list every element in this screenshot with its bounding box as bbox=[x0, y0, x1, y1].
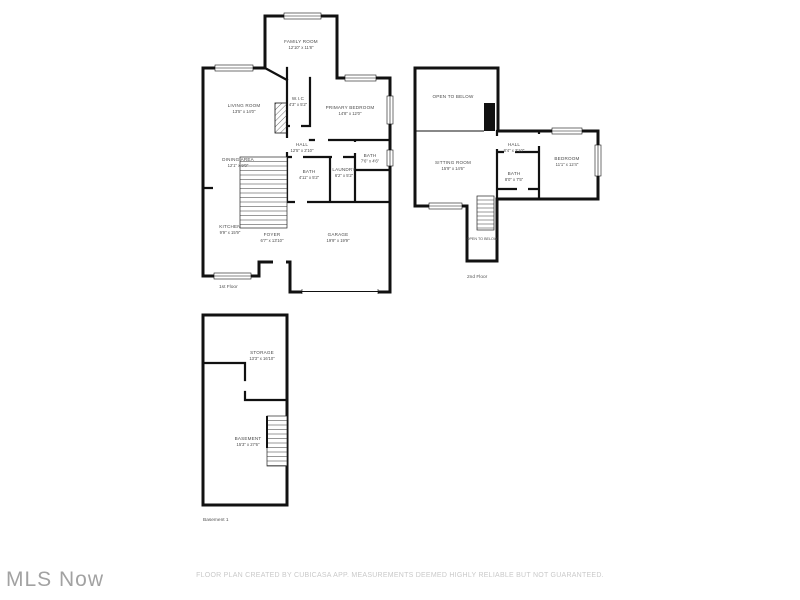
room-dims-garage: 19'9" x 19'9" bbox=[327, 238, 350, 243]
room-label-sitting-room: SITTING ROOM bbox=[435, 160, 471, 165]
room-label-open-to-below: OPEN TO BELOW bbox=[433, 94, 474, 99]
stair-outline bbox=[267, 416, 287, 466]
room-dims-family-room: 12'10" x 11'8" bbox=[289, 45, 314, 50]
basement-interior-walls bbox=[203, 363, 287, 400]
floor-label-second: 2nd Floor bbox=[467, 274, 488, 280]
garage-door bbox=[302, 289, 378, 295]
room-label-bath-1: BATH bbox=[303, 169, 316, 174]
floor-label-first: 1st Floor bbox=[219, 284, 238, 290]
first-floor-exterior-walls bbox=[203, 16, 390, 292]
room-label-family-room: FAMILY ROOM bbox=[284, 39, 318, 44]
chimney-block bbox=[484, 103, 495, 131]
second-floor-stairs bbox=[477, 196, 494, 230]
room-dims-hall-2: 8'4" x 2'10" bbox=[504, 148, 525, 153]
room-label-bedroom: BEDROOM bbox=[554, 156, 579, 161]
second-floor-plan: OPEN TO BELOW SITTING ROOM 15'9" x 14'6"… bbox=[415, 68, 601, 280]
room-label-laundry: LAUNDRY bbox=[332, 167, 355, 172]
basement-exterior-walls bbox=[203, 315, 287, 505]
disclaimer-text: FLOOR PLAN CREATED BY CUBICASA APP. MEAS… bbox=[0, 572, 800, 579]
room-label-hall-2: HALL bbox=[508, 142, 521, 147]
room-label-foyer: FOYER bbox=[264, 232, 281, 237]
room-label-primary-bedroom: PRIMARY BEDROOM bbox=[326, 105, 375, 110]
room-dims-basement: 15'3" x 27'6" bbox=[237, 442, 260, 447]
first-floor-plan: FAMILY ROOM 12'10" x 11'8" LIVING ROOM 1… bbox=[203, 13, 393, 295]
room-dims-hall-1: 12'5" x 2'10" bbox=[291, 148, 314, 153]
room-label-storage: STORAGE bbox=[250, 350, 274, 355]
floor-label-basement: Basement 1 bbox=[203, 517, 229, 523]
stair-outline bbox=[477, 196, 494, 230]
room-dims-primary-bedroom: 14'8" x 12'0" bbox=[339, 111, 362, 116]
room-dims-laundry: 6'2" x 5'2" bbox=[335, 173, 354, 178]
room-label-wic: W.I.C bbox=[292, 96, 305, 101]
room-dims-bath-1: 4'11" x 5'2" bbox=[299, 175, 320, 180]
room-dims-living-room: 13'5" x 14'0" bbox=[233, 109, 256, 114]
room-label-open-to-below-2: OPEN TO BELOW bbox=[467, 237, 498, 241]
fireplace-hatch bbox=[275, 103, 287, 133]
room-dims-sitting-room: 15'9" x 14'6" bbox=[442, 166, 465, 171]
basement-plan: STORAGE 13'3" x 16'10" BASEMENT 15'3" x … bbox=[203, 315, 287, 523]
room-label-bath-3: BATH bbox=[508, 171, 521, 176]
room-label-dining-area: DINING AREA bbox=[222, 157, 255, 162]
room-label-bath-2: BATH bbox=[364, 153, 377, 158]
room-label-kitchen: KITCHEN bbox=[219, 224, 241, 229]
room-label-basement: BASEMENT bbox=[235, 436, 262, 441]
room-label-hall-1: HALL bbox=[296, 142, 309, 147]
room-dims-wic: 4'3" x 5'2" bbox=[289, 102, 308, 107]
room-dims-bath-3: 8'0" x 7'5" bbox=[505, 177, 524, 182]
room-dims-kitchen: 9'9" x 15'9" bbox=[220, 230, 241, 235]
room-dims-bath-2: 7'6" x 4'6" bbox=[361, 159, 380, 164]
basement-stairs bbox=[267, 416, 287, 466]
floor-plan-image: FAMILY ROOM 12'10" x 11'8" LIVING ROOM 1… bbox=[0, 0, 800, 600]
room-dims-bedroom: 11'1" x 12'4" bbox=[556, 162, 579, 167]
room-dims-storage: 13'3" x 16'10" bbox=[249, 356, 275, 361]
room-label-garage: GARAGE bbox=[328, 232, 349, 237]
room-label-living-room: LIVING ROOM bbox=[228, 103, 261, 108]
room-dims-foyer: 6'7" x 13'10" bbox=[261, 238, 284, 243]
room-dims-dining-area: 12'1" x 9'0" bbox=[228, 163, 249, 168]
